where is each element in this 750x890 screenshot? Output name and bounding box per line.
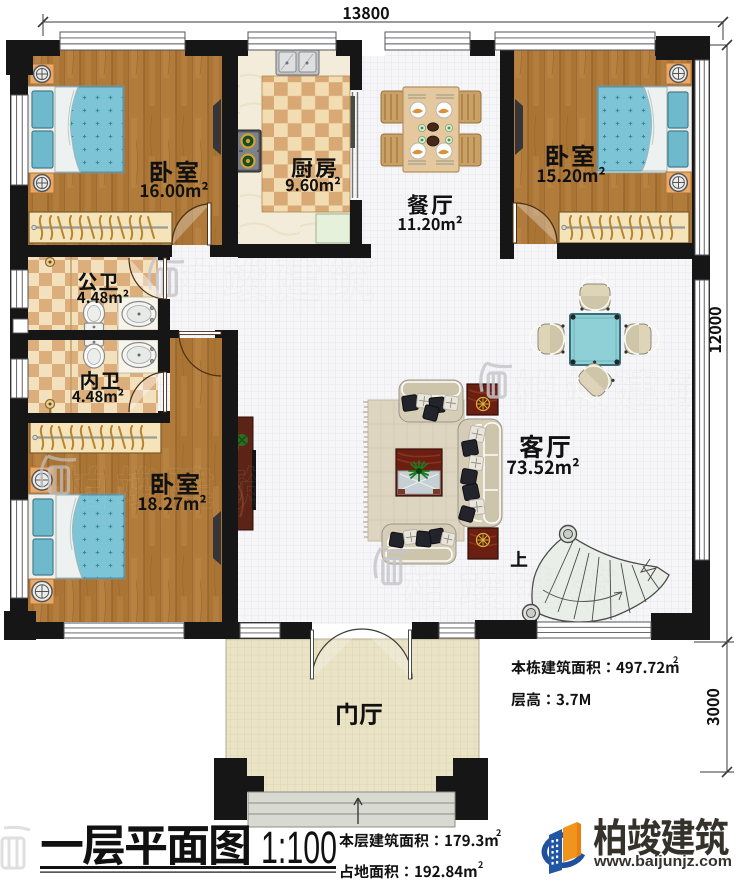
svg-text:www.baijunjz.com: www.baijunjz.com (593, 853, 732, 870)
svg-text:1:100: 1:100 (261, 822, 337, 873)
